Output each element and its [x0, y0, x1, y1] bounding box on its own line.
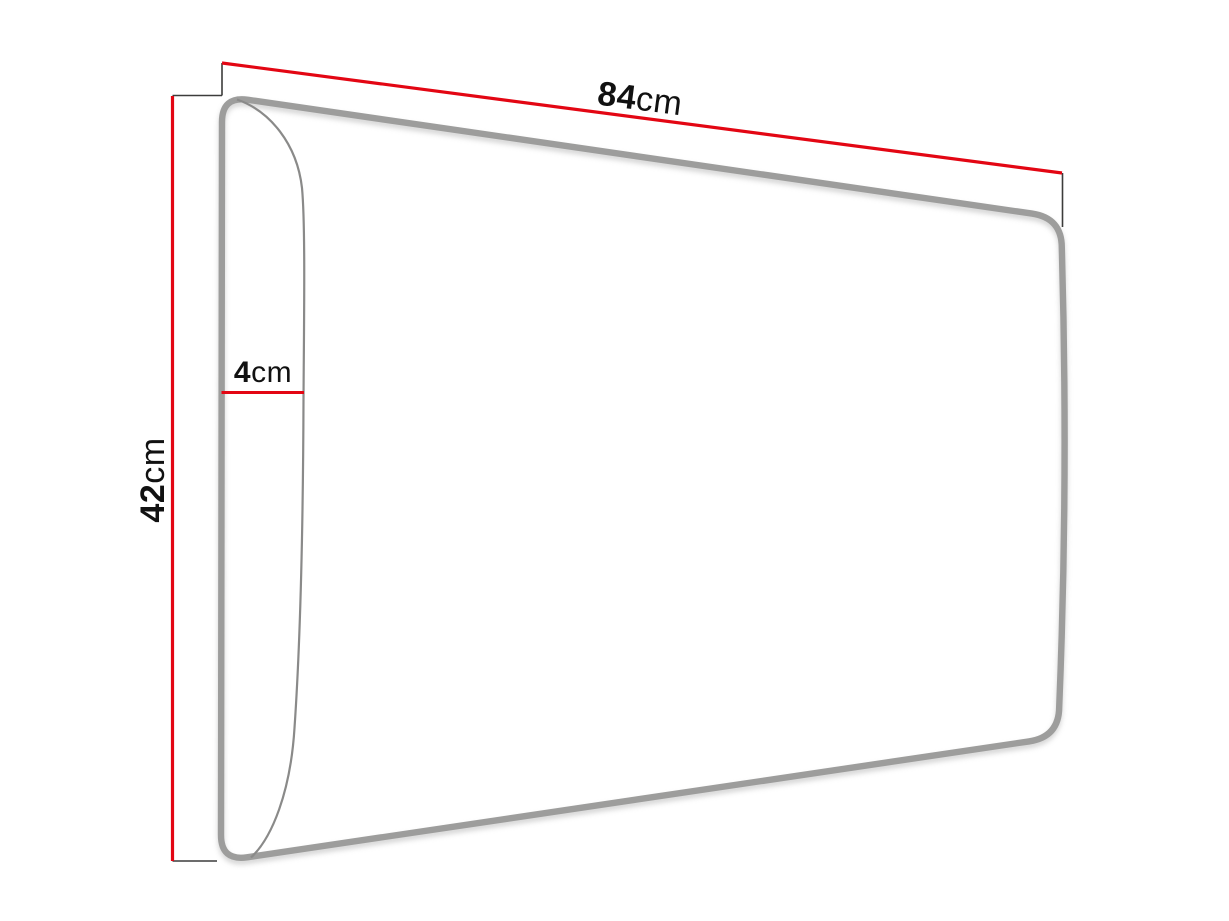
- panel-face: [221, 99, 1065, 857]
- dimension-diagram: 84cm 42cm 4cm: [0, 0, 1229, 921]
- panel-drawing: [0, 0, 1229, 921]
